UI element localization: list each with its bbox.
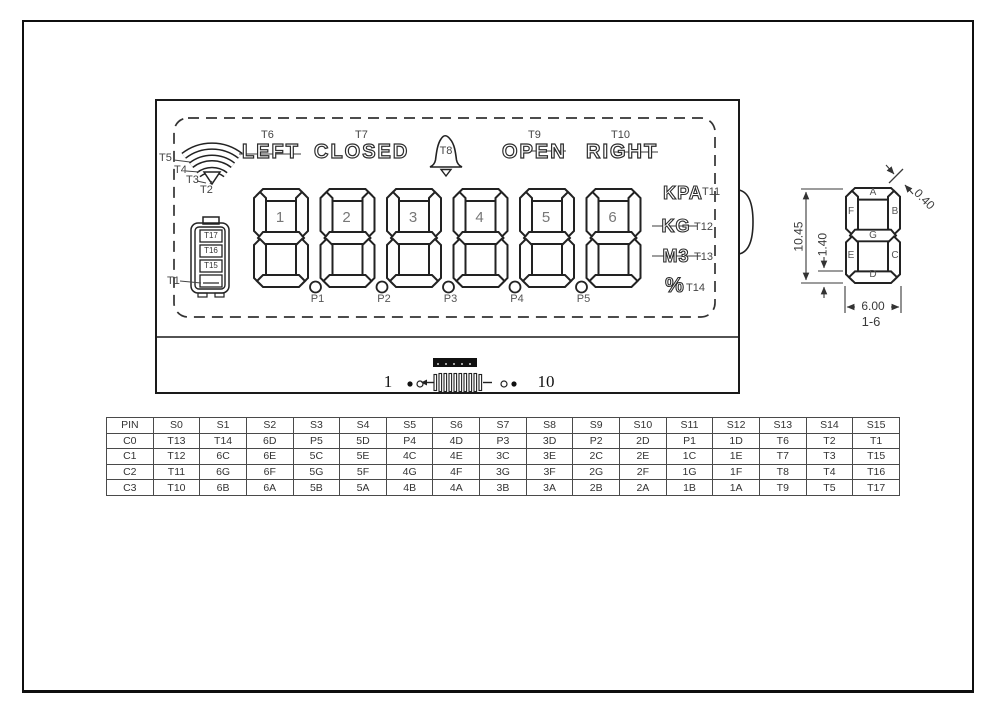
pin-table-cell: T12 [153,449,200,465]
pin-table-header-cell: S11 [666,418,713,434]
pin-table-cell: 3A [526,480,573,496]
segment-label-a: A [866,188,880,198]
module-side-tab [739,190,753,254]
pin-table-cell: T11 [153,464,200,480]
pin-table-header-cell: S8 [526,418,573,434]
pin-table-cell: 5G [293,464,340,480]
status-word-open: OPEN [502,142,566,162]
pin-table-header-cell: S10 [620,418,667,434]
pin-table-cell: 4B [386,480,433,496]
pin-table-cell: 1C [666,449,713,465]
wifi-tag: T5 [159,153,172,164]
pin-table-cell: 6D [246,433,293,449]
pin-table-cell: 5E [340,449,387,465]
pin-table-cell: T8 [759,464,806,480]
pin-table-cell: 1E [713,449,760,465]
pin-table-cell: T6 [759,433,806,449]
pin-table-cell: 5F [340,464,387,480]
pin-table-cell: 3C [480,449,527,465]
decimal-point-label: P5 [573,294,595,305]
battery-bar-label: T15 [200,260,222,272]
pin-table-cell: 3B [480,480,527,496]
segment-label-d: D [866,270,880,280]
pin-table-cell: 1F [713,464,760,480]
pin-table-header-cell: S13 [759,418,806,434]
pin-table-cell: 3D [526,433,573,449]
pin-table-cell: 3G [480,464,527,480]
seven-segment-digits [254,189,641,293]
pin-table-cell: 6A [246,480,293,496]
segment-label-g: G [866,231,880,241]
bell-tag: T8 [437,146,455,157]
pin-table-cell: 6C [200,449,247,465]
decimal-point-label: P2 [373,294,395,305]
pin-table-cell: 5D [340,433,387,449]
pin-table-cell: 4G [386,464,433,480]
digit-number: 3 [400,210,426,225]
digit-number: 1 [267,210,293,225]
pin-table-header-cell: PIN [107,418,154,434]
pin-table-cell: P2 [573,433,620,449]
status-tag: T6 [261,130,274,141]
pin-table-cell: 2B [573,480,620,496]
pin-table-cell: 3F [526,464,573,480]
pin-table-cell: T5 [806,480,853,496]
battery-icon [180,217,229,297]
battery-bar-label: T16 [200,245,222,257]
pin-table-header-cell: S12 [713,418,760,434]
segment-label-b: B [888,207,902,217]
pin-table-cell: T3 [806,449,853,465]
dim-range: 1-6 [853,315,889,329]
pin-table-cell: T9 [759,480,806,496]
unit-tag: T13 [694,252,713,263]
unit-label-kg: KG [658,217,694,235]
pin-table-cell: 3E [526,449,573,465]
status-tag: T9 [528,130,541,141]
fpc-connector [407,358,516,392]
pin-table-cell: 5A [340,480,387,496]
dim-segment-width: 1.40 [816,227,829,263]
dim-height: 10.45 [792,214,805,260]
pin-table-cell: 6F [246,464,293,480]
wifi-tag: T3 [186,175,199,186]
pin-table-header-cell: S5 [386,418,433,434]
pin-table-cell: T13 [153,433,200,449]
pin-table: PINS0S1S2S3S4S5S6S7S8S9S10S11S12S13S14S1… [106,417,900,496]
unit-label-kpa: KPA [660,184,706,202]
pin-table-cell: 6G [200,464,247,480]
pin-table-cell: T2 [806,433,853,449]
decimal-point-label: P1 [307,294,329,305]
dim-width: 6.00 [855,300,891,313]
pin-table-header-cell: S15 [853,418,900,434]
pin-table-cell: T7 [759,449,806,465]
pin-table-cell: 2F [620,464,667,480]
pin-table-cell: 5C [293,449,340,465]
digit-number: 4 [467,210,493,225]
pin-table-body: PINS0S1S2S3S4S5S6S7S8S9S10S11S12S13S14S1… [107,418,900,496]
status-tag: T10 [611,130,630,141]
unit-tag: T12 [694,222,713,233]
pin-table-header-cell: S9 [573,418,620,434]
status-word-closed: CLOSED [314,142,406,162]
unit-tag: T11 [702,187,720,198]
pin-table-cell: T15 [853,449,900,465]
pin-table-header-cell: S6 [433,418,480,434]
pin-table-cell: P4 [386,433,433,449]
pin-table-cell: C0 [107,433,154,449]
pin-table-cell: T10 [153,480,200,496]
pin-table-cell: 1G [666,464,713,480]
pin-table-row: PINS0S1S2S3S4S5S6S7S8S9S10S11S12S13S14S1… [107,418,900,434]
unit-tag: T14 [686,283,705,294]
pin-table-cell: 6B [200,480,247,496]
pin-table-cell: T1 [853,433,900,449]
pin-table-cell: 2D [620,433,667,449]
pin-table-header-cell: S0 [153,418,200,434]
pin-table-cell: T14 [200,433,247,449]
pin-table-cell: P3 [480,433,527,449]
segment-label-c: C [888,251,902,261]
pin-table-row: C0T13T146DP55DP44DP33DP22DP11DT6T2T1 [107,433,900,449]
pin-table-cell: 4A [433,480,480,496]
pin-table-cell: 2C [573,449,620,465]
datasheet-page: T5 T4 T3 T2 T6 LEFT T7 CLOSED T8 T9 OPEN… [0,0,1000,719]
pin-table-cell: C3 [107,480,154,496]
pin-table-cell: 1A [713,480,760,496]
pin-table-cell: T4 [806,464,853,480]
unit-label-m3: M3 [658,247,694,265]
pin-table-cell: 6E [246,449,293,465]
digit-number: 2 [334,210,360,225]
pin-table-cell: P5 [293,433,340,449]
decimal-point-label: P3 [440,294,462,305]
pin-table-cell: 4D [433,433,480,449]
pin-table-cell: C1 [107,449,154,465]
decimal-point-label: P4 [506,294,528,305]
battery-case-tag: T1 [167,276,180,287]
connector-pin-first: 1 [380,373,396,390]
pin-table-cell: T17 [853,480,900,496]
status-word-right: RIGHT [586,142,656,162]
pin-table-cell: 1B [666,480,713,496]
segment-label-e: E [844,251,858,261]
pin-table-cell: C2 [107,464,154,480]
pin-table-row: C3T106B6A5B5A4B4A3B3A2B2A1B1AT9T5T17 [107,480,900,496]
pin-table-cell: T16 [853,464,900,480]
status-tag: T7 [355,130,368,141]
pin-table-row: C1T126C6E5C5E4C4E3C3E2C2E1C1ET7T3T15 [107,449,900,465]
pin-table-header-cell: S1 [200,418,247,434]
wifi-tag: T2 [200,185,213,196]
battery-bar-label: T17 [200,230,222,242]
pin-table-cell: P1 [666,433,713,449]
segment-label-f: F [844,207,858,217]
pin-table-header-cell: S3 [293,418,340,434]
pin-table-header-cell: S4 [340,418,387,434]
pin-table-cell: 2A [620,480,667,496]
pin-table-header-cell: S2 [246,418,293,434]
pin-table-cell: 5B [293,480,340,496]
digit-number: 6 [600,210,626,225]
pin-table-cell: 2G [573,464,620,480]
pin-table-row: C2T116G6F5G5F4G4F3G3F2G2F1G1FT8T4T16 [107,464,900,480]
line-art [0,0,1000,719]
connector-pin-last: 10 [535,373,557,390]
status-word-left: LEFT [240,142,302,162]
pin-table-cell: 4C [386,449,433,465]
unit-label-percent: % [661,275,689,296]
wifi-tag: T4 [174,165,187,176]
pin-table-cell: 4F [433,464,480,480]
pin-table-cell: 4E [433,449,480,465]
pin-table-grid: PINS0S1S2S3S4S5S6S7S8S9S10S11S12S13S14S1… [106,417,900,496]
pin-table-cell: 2E [620,449,667,465]
digit-number: 5 [533,210,559,225]
pin-table-header-cell: S14 [806,418,853,434]
pin-table-header-cell: S7 [480,418,527,434]
pin-table-cell: 1D [713,433,760,449]
